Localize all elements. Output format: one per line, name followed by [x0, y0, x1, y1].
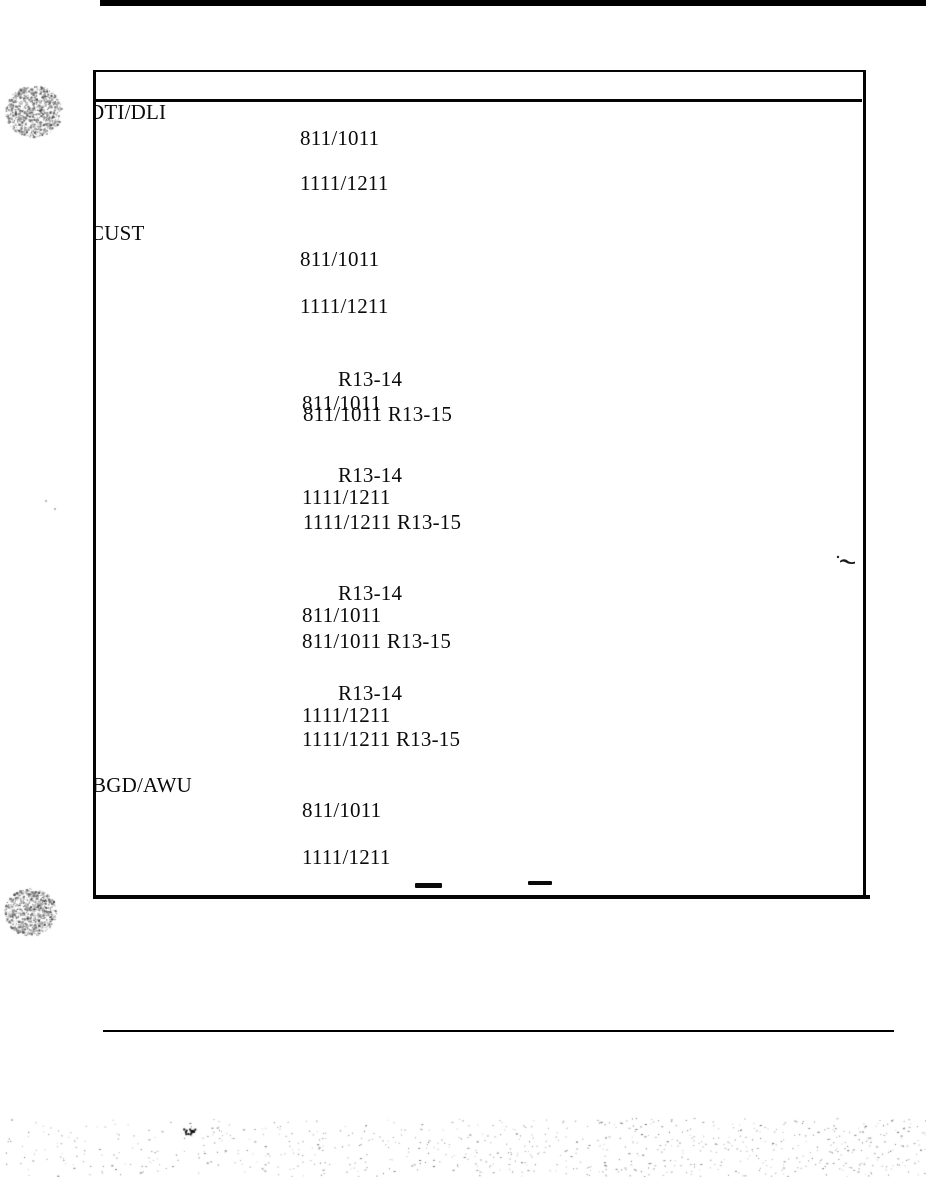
table-cell-text: R13-14: [338, 369, 402, 390]
clipped-label-wrap: BGD/AWU: [94, 775, 224, 800]
table-cell-text: 1111/1211: [302, 847, 391, 868]
table-cell-text: 811/1011 R13-15: [302, 631, 451, 652]
clipped-label-wrap: DTI/DLI: [94, 102, 224, 127]
table-header-separator: [93, 99, 862, 102]
dash-mark: [528, 881, 552, 885]
table-row-label: BGD/AWU: [94, 775, 192, 796]
squiggle-artifact: [834, 552, 858, 566]
table-cell-text: 1111/1211: [300, 173, 389, 194]
scanned-page: DTI/DLI811/10111111/1211CUST811/10111111…: [0, 0, 926, 1177]
table-cell-text: 811/1011 R13-15: [303, 404, 452, 425]
table-cell-text: 811/1011: [302, 605, 381, 626]
table-cell-text: 811/1011: [302, 800, 381, 821]
table-cell-text: 1111/1211: [302, 487, 391, 508]
bottom-rule: [103, 1030, 894, 1032]
table-cell-text: 1111/1211: [300, 296, 389, 317]
table-right-border: [863, 70, 866, 898]
table-bottom-border: [93, 895, 870, 899]
table-cell-text: 1111/1211: [302, 705, 391, 726]
scan-noise-layer: [0, 0, 926, 1177]
table-left-border: [93, 70, 96, 899]
table-cell-text: R13-14: [338, 683, 402, 704]
table-cell-text: R13-14: [338, 583, 402, 604]
dash-mark: [415, 883, 442, 888]
table-top-border: [93, 70, 864, 72]
table-row-label: CUST: [94, 223, 144, 244]
table-cell-text: 1111/1211 R13-15: [302, 729, 460, 750]
table-cell-text: 1111/1211 R13-15: [303, 512, 461, 533]
table-cell-text: 811/1011: [300, 128, 379, 149]
clipped-label-wrap: CUST: [94, 223, 224, 248]
top-rule: [100, 0, 926, 6]
table-cell-text: R13-14: [338, 465, 402, 486]
table-cell-text: 811/1011: [300, 249, 379, 270]
table-row-label: DTI/DLI: [94, 102, 166, 123]
